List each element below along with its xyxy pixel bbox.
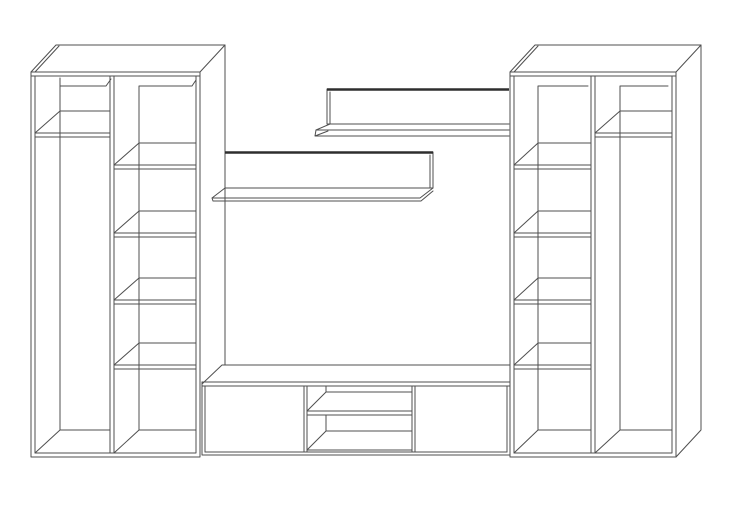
right-wardrobe-hanging-section (595, 86, 672, 453)
tv-stand-right-door (415, 386, 507, 452)
right-wardrobe-shelf-column (514, 86, 591, 453)
wall-unit-drawing (0, 0, 750, 508)
shelf-column-interior (114, 80, 196, 453)
lower-shelf-back-panel (225, 152, 433, 188)
left-wardrobe-divider (110, 76, 114, 453)
tv-stand-body (202, 382, 510, 455)
lower-shelf-board (212, 188, 433, 201)
right-wardrobe-top (510, 45, 701, 76)
upper-shelf-board (315, 124, 509, 136)
dark-accent-edges (225, 90, 509, 153)
hanging-section-interior (35, 78, 111, 453)
tv-stand-open-niche (307, 386, 412, 452)
hanging-section-interior (595, 86, 672, 453)
right-wardrobe (510, 45, 701, 457)
left-wardrobe-shelf-column (114, 80, 196, 453)
tv-stand (202, 365, 510, 455)
right-wardrobe-side-panel (676, 45, 701, 457)
left-wardrobe (31, 45, 225, 457)
left-wardrobe-top (31, 45, 225, 76)
right-wardrobe-divider (591, 76, 595, 453)
furniture-drawing-page (0, 0, 750, 508)
left-wardrobe-hanging-section (35, 78, 111, 453)
line-art (31, 45, 701, 457)
left-wardrobe-frame (31, 72, 200, 457)
shelf-column-interior (514, 86, 591, 453)
upper-wall-shelf (315, 89, 509, 136)
lower-wall-shelf (212, 152, 433, 201)
upper-shelf-back-panel (327, 89, 509, 124)
right-wardrobe-frame (510, 72, 676, 457)
tv-stand-left-door (205, 386, 304, 452)
tv-stand-top (202, 365, 510, 386)
